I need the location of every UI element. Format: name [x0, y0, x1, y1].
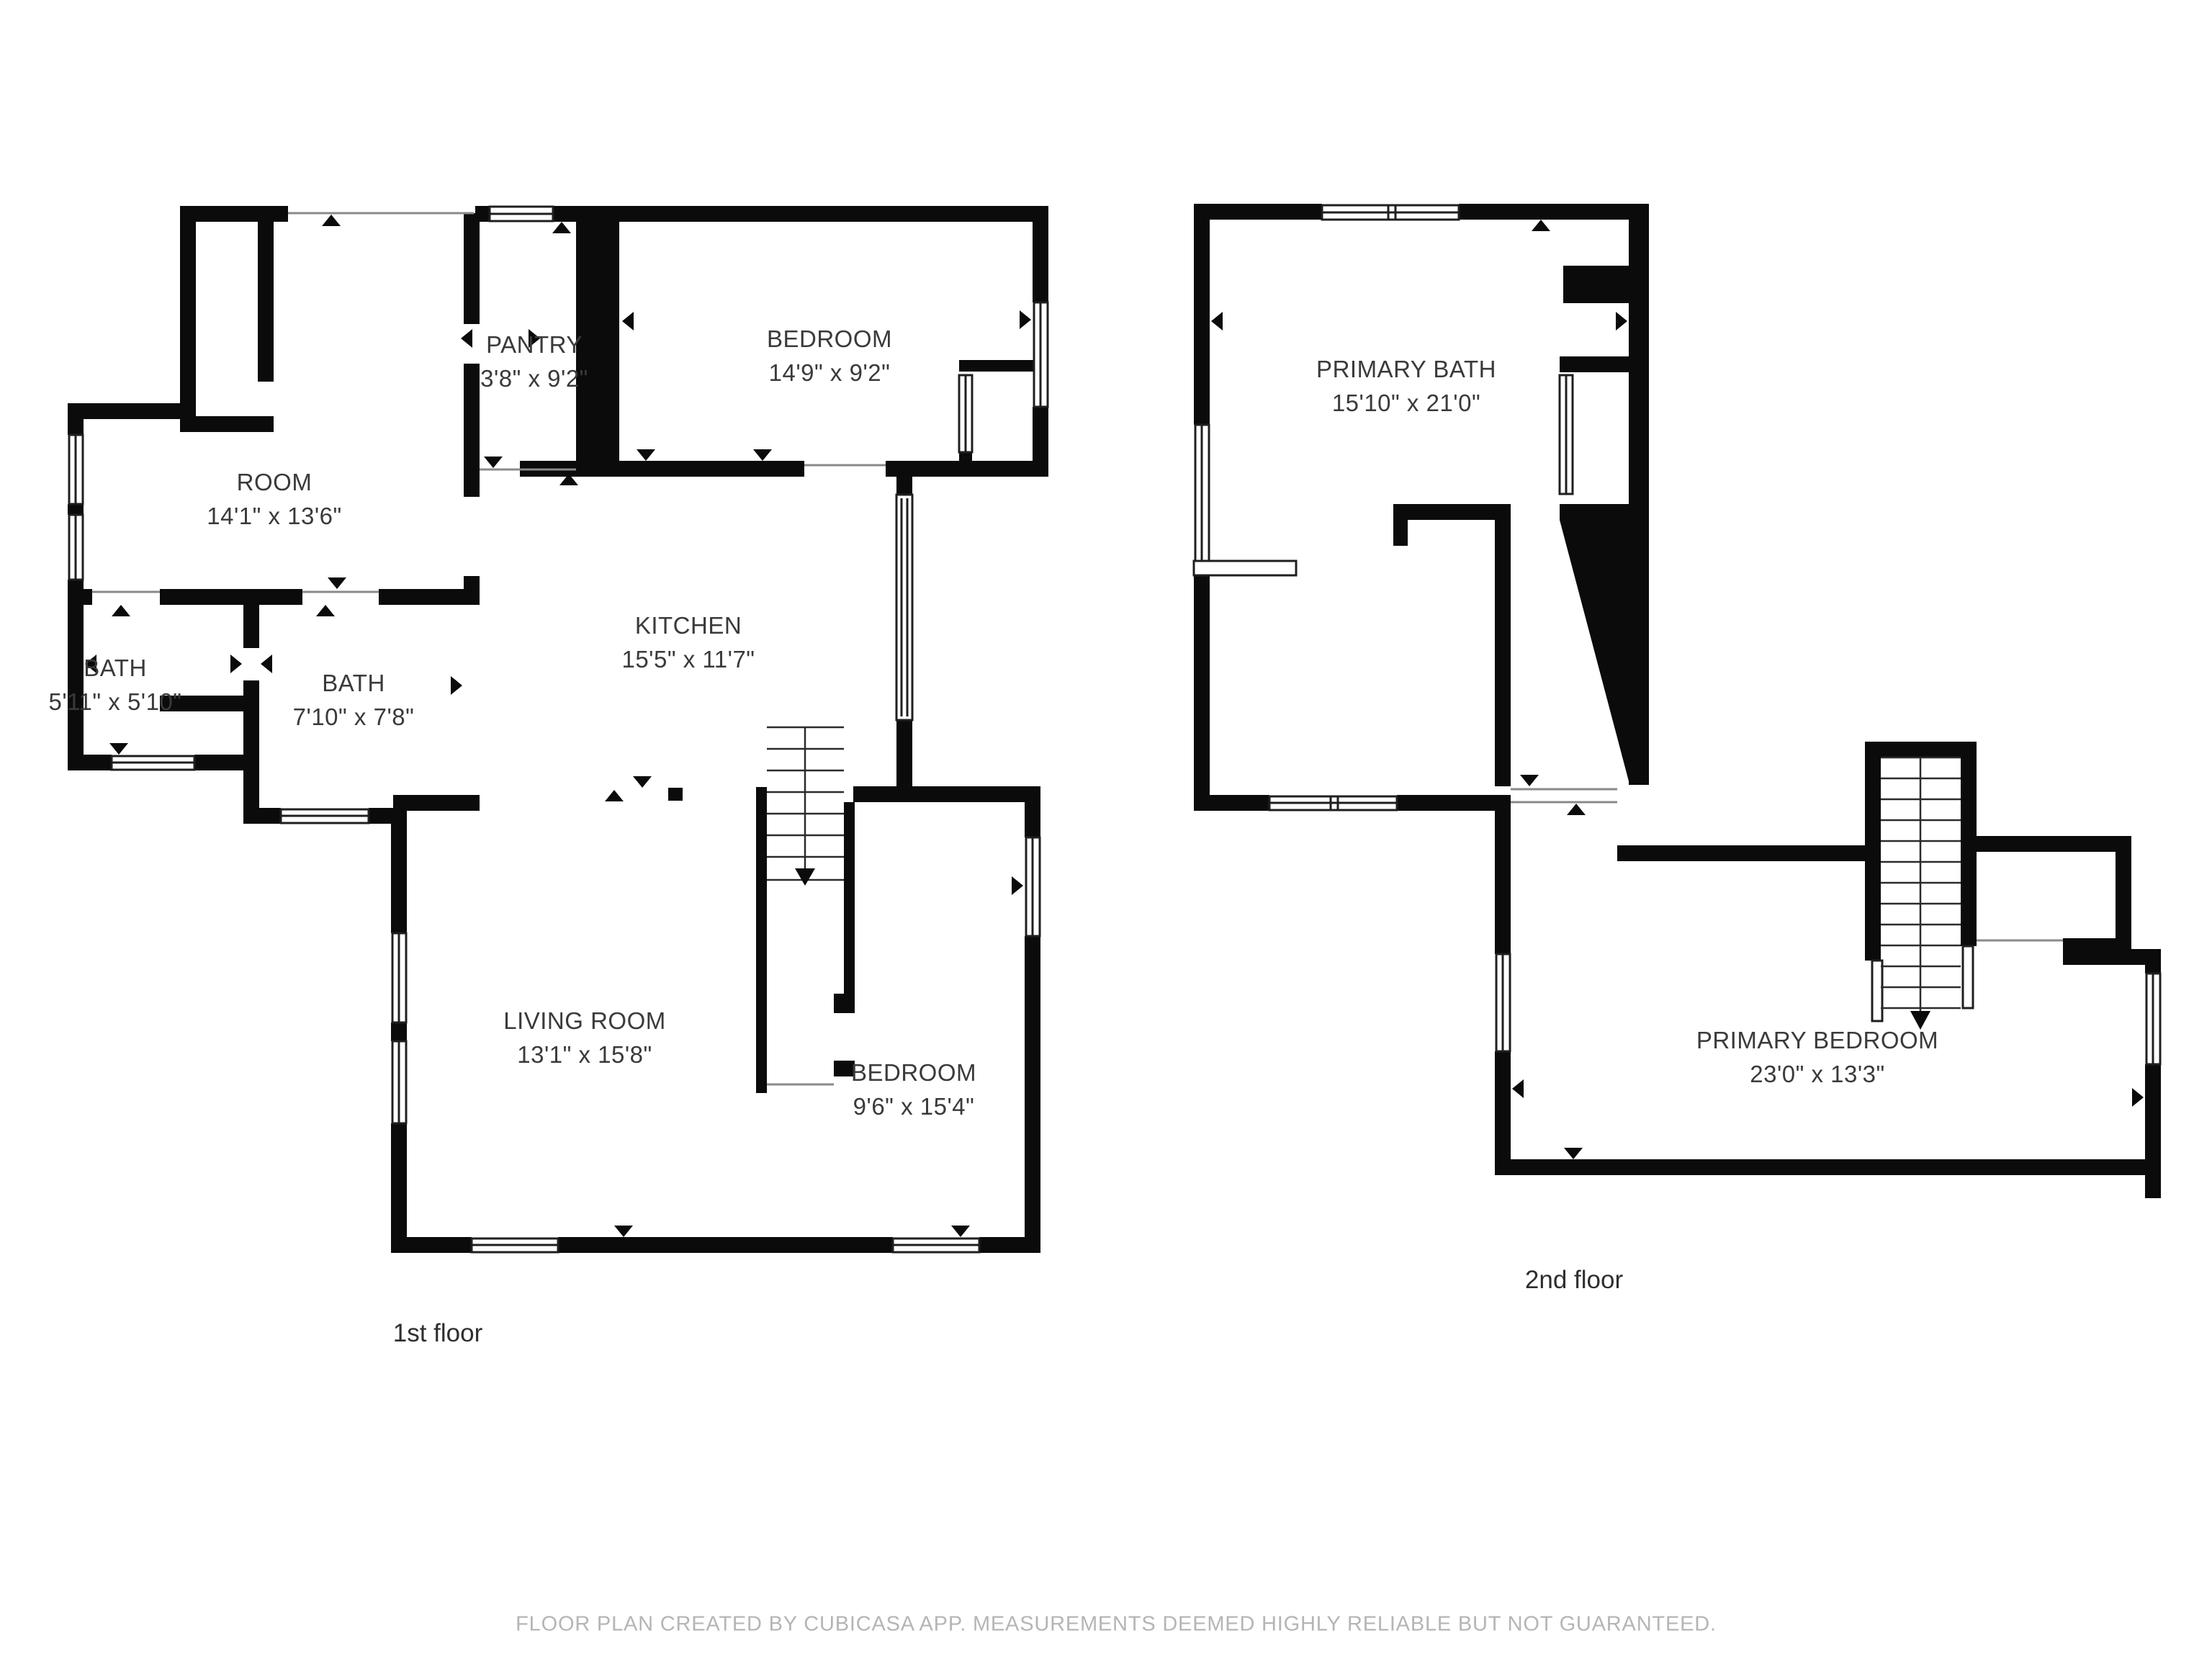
floor-plan-canvas: ROOM 14'1" x 13'6" PANTRY 3'8" x 9'2" BE… — [0, 0, 2212, 1659]
room-dimensions: 9'6" x 15'4" — [851, 1094, 976, 1118]
first-floor-stairs-icon — [767, 727, 844, 886]
room-label-kitchen: KITCHEN 15'5" x 11'7" — [621, 613, 755, 671]
second-floor-stairs-icon — [1881, 757, 1961, 1030]
second-floor-plan — [1194, 204, 2161, 1198]
room-label-primary-bedroom: PRIMARY BEDROOM 23'0" x 13'3" — [1696, 1028, 1938, 1086]
window-icon — [1496, 954, 1510, 1051]
second-floor-threshold-lines — [1511, 789, 2063, 940]
room-label-bedroom-top: BEDROOM 14'9" x 9'2" — [767, 327, 892, 385]
room-dimensions: 14'9" x 9'2" — [767, 361, 892, 385]
room-name: PRIMARY BATH — [1316, 356, 1496, 382]
room-name: BATH — [84, 655, 147, 681]
room-label-bath-small: BATH 5'11" x 5'10" — [48, 656, 181, 714]
room-dimensions: 15'5" x 11'7" — [621, 647, 755, 671]
room-name: LIVING ROOM — [503, 1007, 666, 1034]
room-name: BEDROOM — [767, 325, 892, 352]
room-label-room: ROOM 14'1" x 13'6" — [207, 470, 341, 528]
room-label-bath-large: BATH 7'10" x 7'8" — [293, 671, 415, 729]
window-icon — [112, 756, 194, 770]
window-icon — [1322, 205, 1459, 220]
window-icon — [69, 435, 83, 504]
room-name: BEDROOM — [851, 1059, 976, 1086]
window-icon — [1034, 302, 1048, 407]
room-name: ROOM — [237, 469, 313, 495]
window-icon — [69, 515, 83, 580]
second-floor-windows — [1194, 205, 2160, 1064]
room-dimensions: 15'10" x 21'0" — [1316, 391, 1496, 415]
room-dimensions: 13'1" x 15'8" — [503, 1043, 666, 1066]
stair-rail-icon — [1872, 946, 1973, 1021]
second-floor-caption: 2nd floor — [1525, 1266, 1623, 1295]
room-dimensions: 7'10" x 7'8" — [293, 705, 415, 729]
window-icon — [1269, 796, 1397, 810]
room-name: PANTRY — [486, 331, 583, 358]
room-dimensions: 23'0" x 13'3" — [1696, 1062, 1938, 1086]
first-floor-caption: 1st floor — [393, 1319, 483, 1348]
window-icon — [490, 207, 553, 221]
floor-plan-drawing — [0, 0, 2212, 1659]
room-label-living-room: LIVING ROOM 13'1" x 15'8" — [503, 1009, 666, 1066]
window-icon — [2146, 974, 2160, 1064]
room-dimensions: 3'8" x 9'2" — [480, 367, 588, 390]
room-name: BATH — [322, 670, 385, 696]
second-floor-walls — [1194, 204, 2161, 1198]
window-icon — [392, 933, 406, 1022]
window-icon — [281, 809, 369, 823]
room-label-primary-bath: PRIMARY BATH 15'10" x 21'0" — [1316, 357, 1496, 415]
counter-icon — [1194, 561, 1296, 575]
footer-disclaimer: FLOOR PLAN CREATED BY CUBICASA APP. MEAS… — [516, 1613, 1717, 1637]
room-dimensions: 5'11" x 5'10" — [48, 690, 181, 714]
sliding-door-icon — [959, 375, 972, 452]
room-label-bedroom-bottom: BEDROOM 9'6" x 15'4" — [851, 1061, 976, 1118]
sliding-door-icon — [896, 495, 912, 720]
window-icon — [472, 1238, 558, 1252]
window-icon — [1195, 425, 1209, 562]
window-icon — [392, 1041, 406, 1123]
sliding-door-icon — [1560, 375, 1573, 494]
room-dimensions: 14'1" x 13'6" — [207, 504, 341, 528]
window-icon — [1026, 837, 1040, 936]
room-name: KITCHEN — [635, 612, 742, 639]
room-label-pantry: PANTRY 3'8" x 9'2" — [480, 333, 588, 390]
window-icon — [893, 1238, 979, 1252]
room-name: PRIMARY BEDROOM — [1696, 1027, 1938, 1053]
